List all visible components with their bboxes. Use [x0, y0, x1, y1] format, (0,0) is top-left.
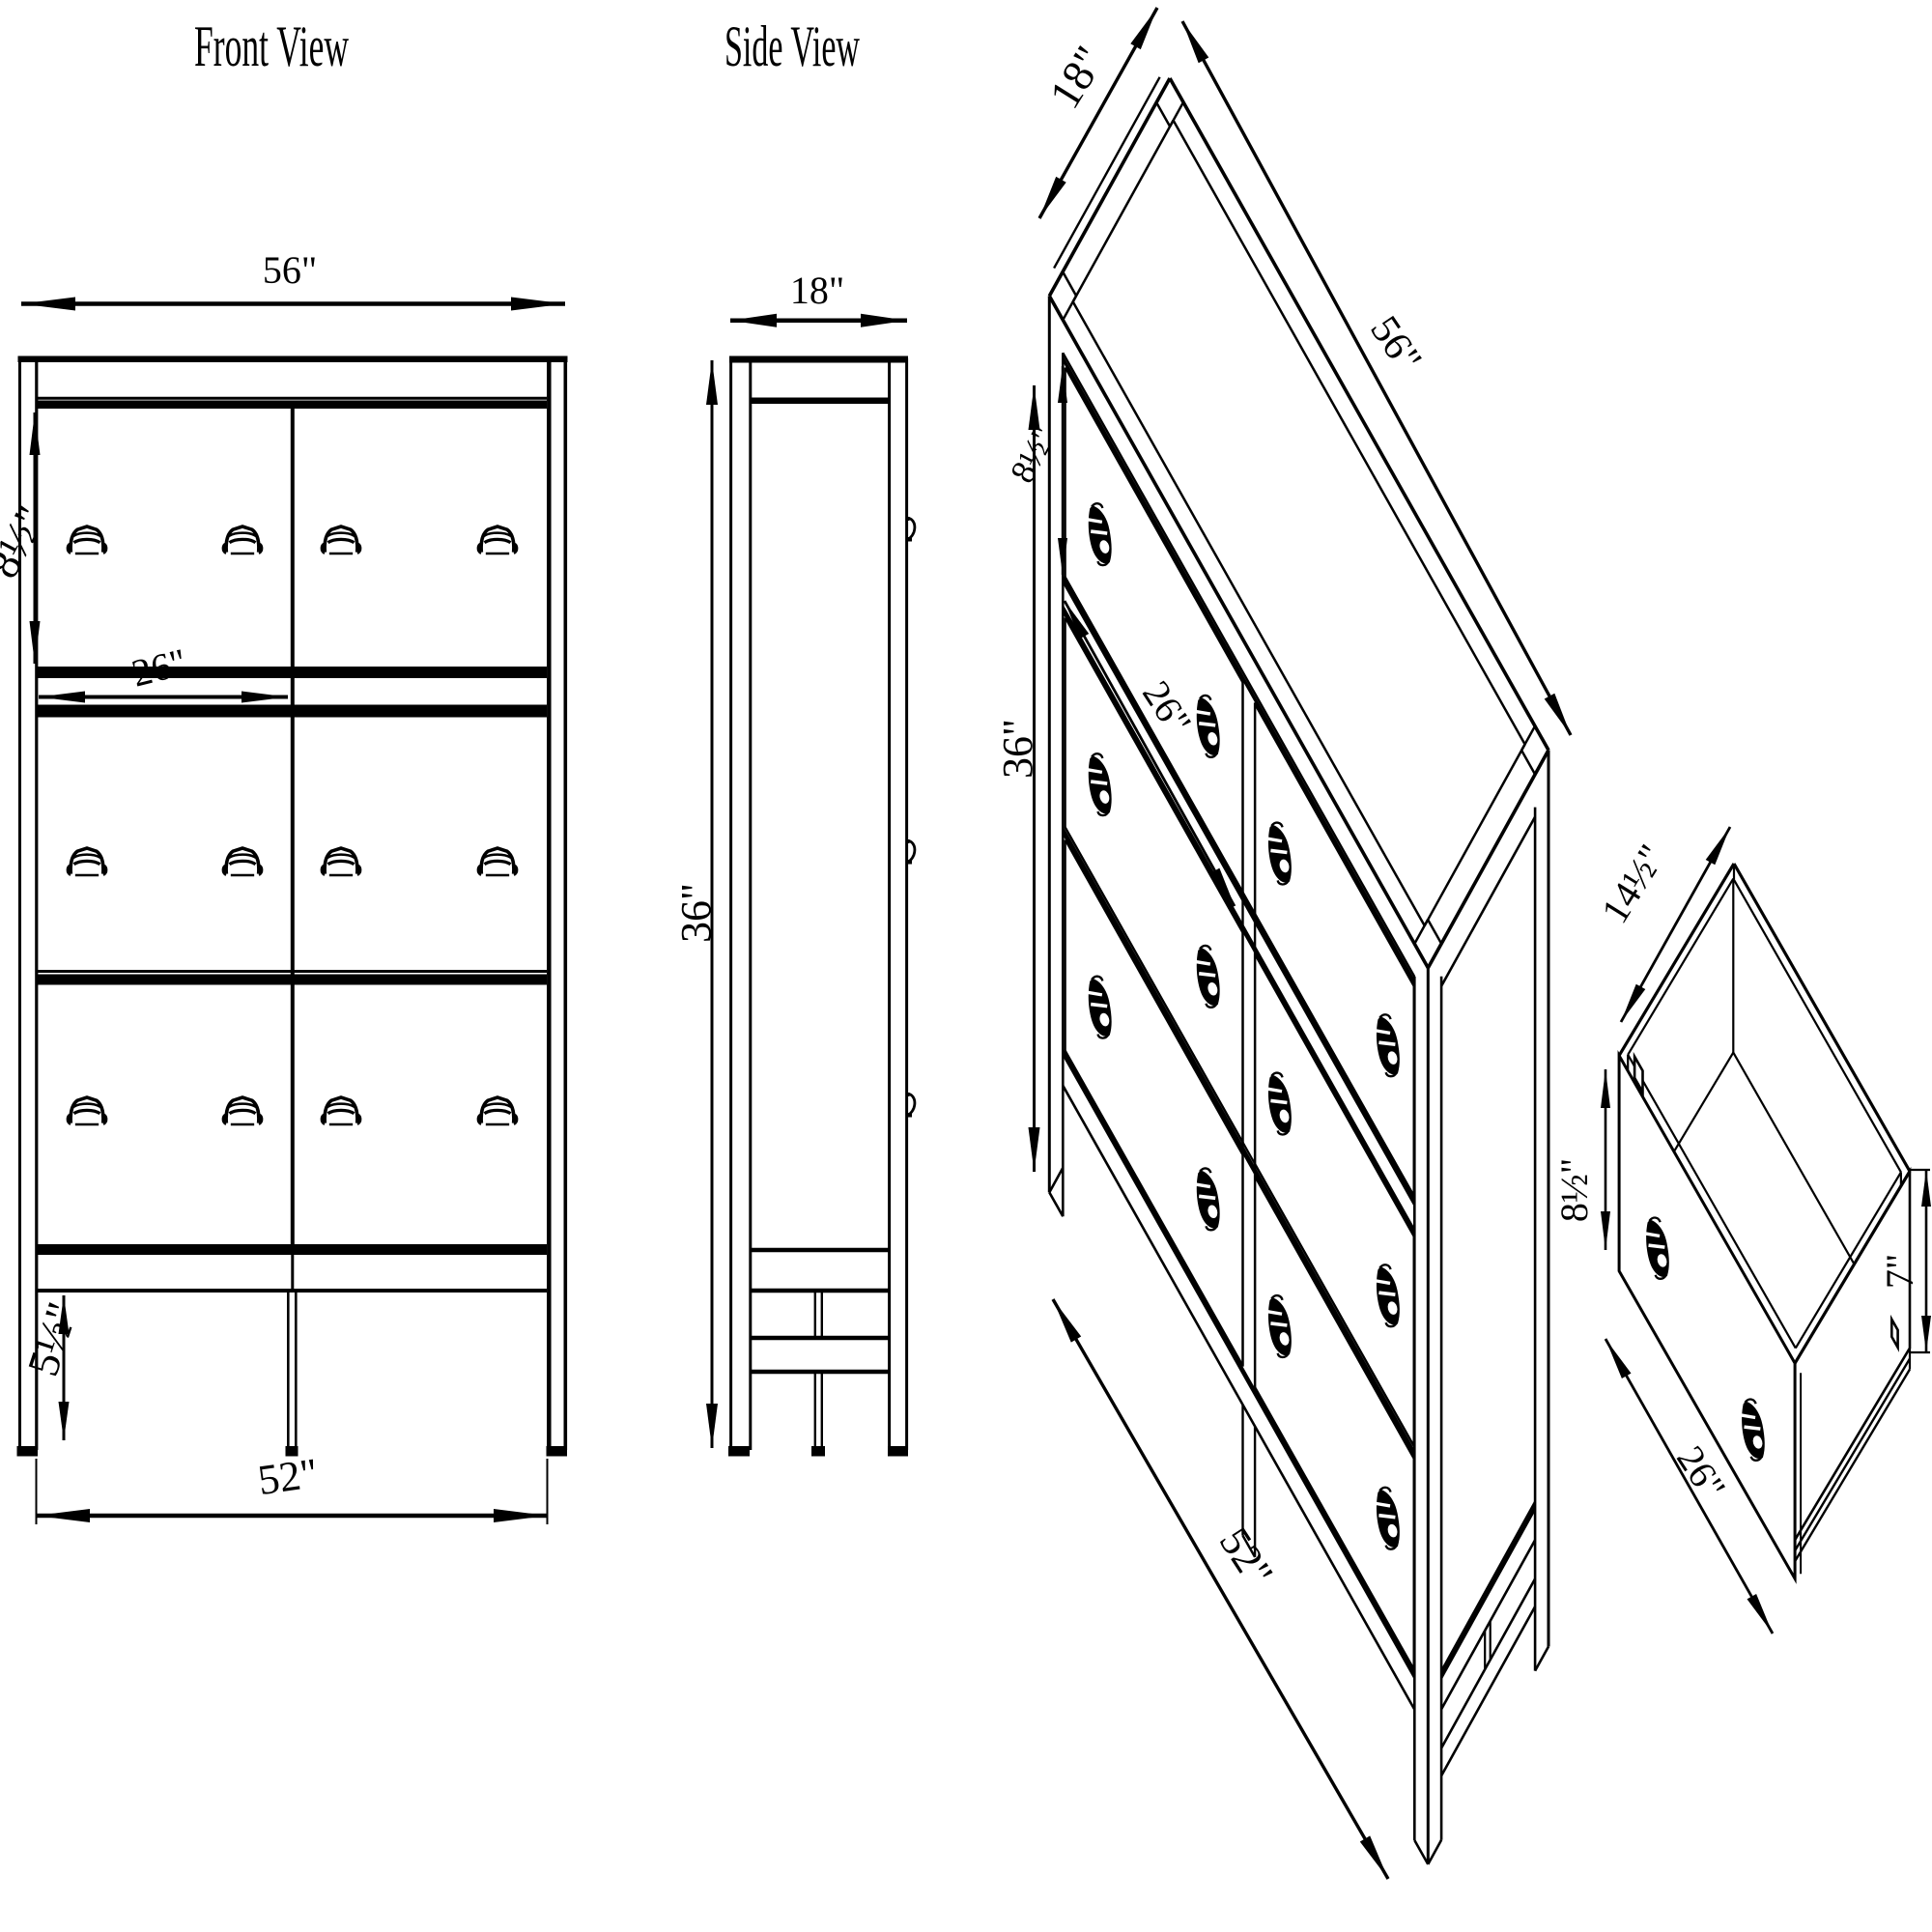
svg-text:7": 7" [1878, 1254, 1921, 1289]
svg-text:52": 52" [255, 1449, 321, 1504]
svg-text:8½": 8½" [1552, 1158, 1596, 1222]
svg-text:18": 18" [790, 269, 844, 312]
svg-text:56": 56" [263, 248, 317, 292]
svg-text:Front View: Front View [194, 14, 349, 78]
svg-text:Side View: Side View [724, 14, 860, 78]
